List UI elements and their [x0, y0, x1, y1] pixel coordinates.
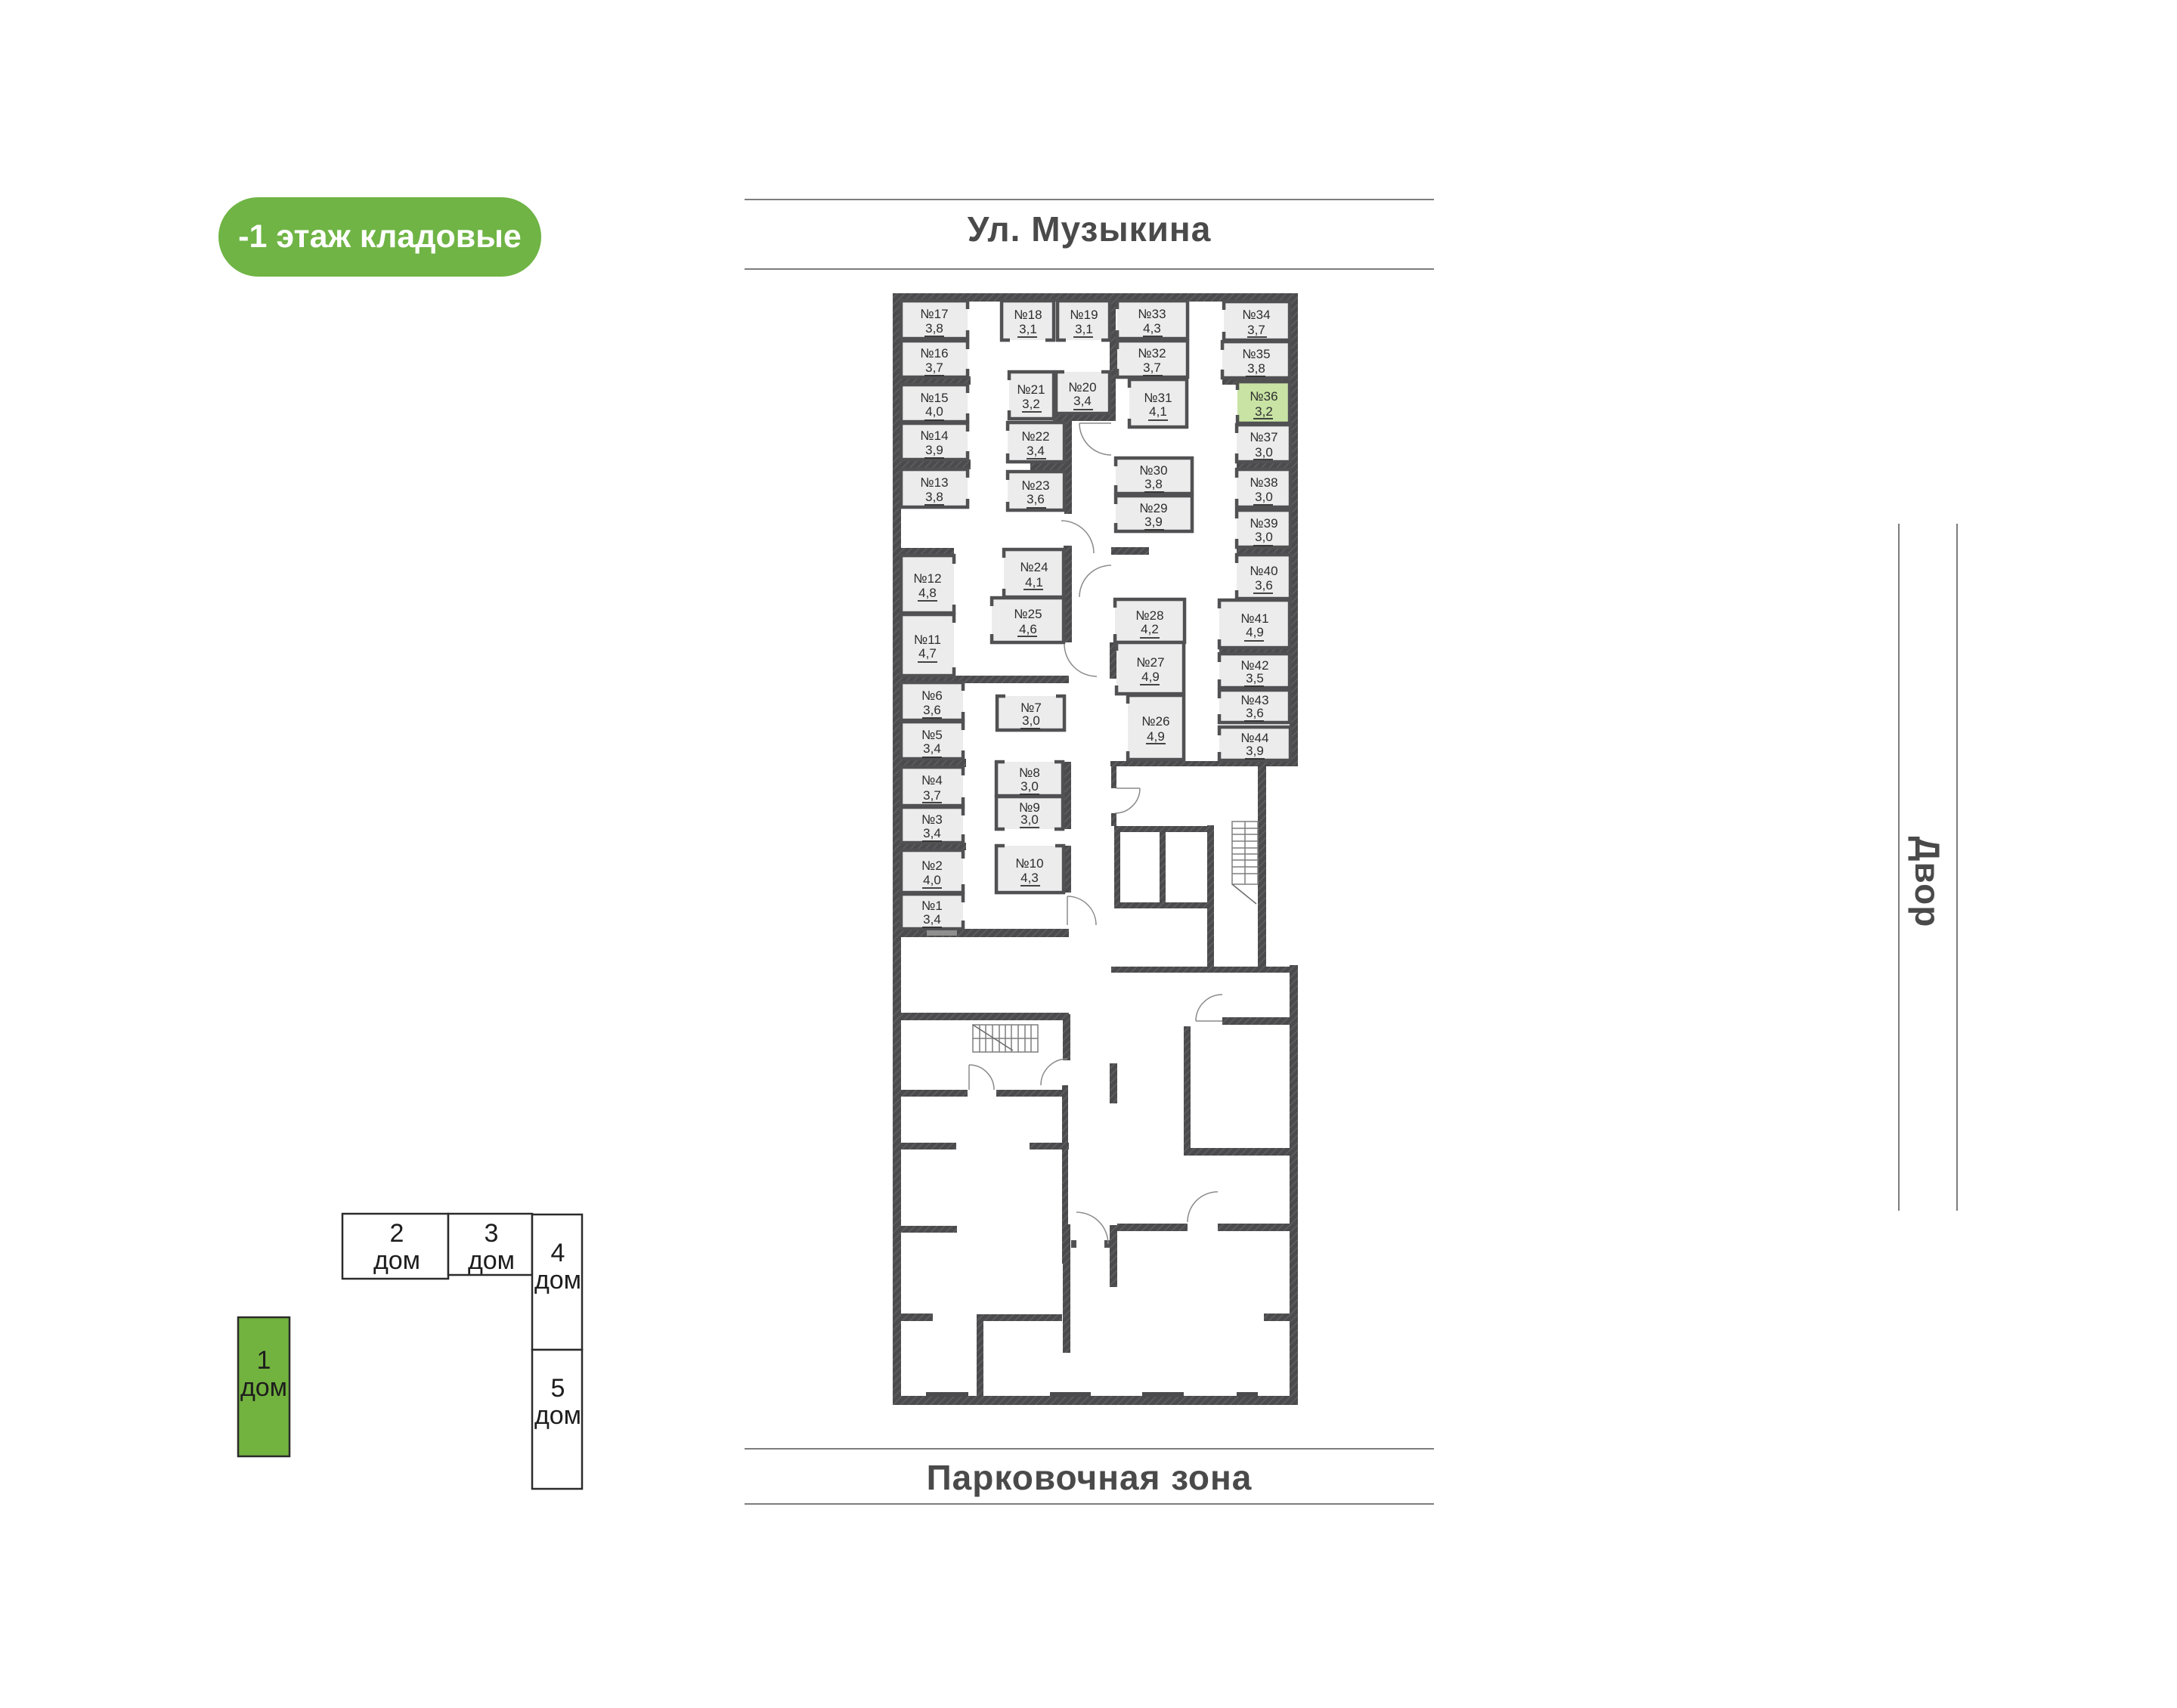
svg-text:4,9: 4,9 [1246, 625, 1264, 639]
svg-text:3,9: 3,9 [1144, 515, 1163, 529]
svg-text:3,7: 3,7 [925, 360, 943, 375]
svg-text:№40: №40 [1250, 564, 1277, 578]
svg-text:№20: №20 [1068, 380, 1096, 395]
svg-text:№1: №1 [921, 899, 943, 913]
svg-text:3,8: 3,8 [925, 321, 943, 336]
svg-text:4,3: 4,3 [1020, 871, 1039, 885]
svg-text:№14: №14 [920, 429, 948, 443]
svg-text:№19: №19 [1070, 308, 1098, 322]
svg-text:3,6: 3,6 [1027, 492, 1045, 506]
svg-text:4,9: 4,9 [1147, 729, 1165, 744]
svg-text:4,0: 4,0 [923, 873, 941, 887]
svg-text:№32: №32 [1138, 346, 1166, 360]
svg-text:№10: №10 [1015, 856, 1043, 871]
svg-text:№11: №11 [914, 633, 941, 647]
svg-text:№3: №3 [921, 812, 943, 827]
svg-text:3,8: 3,8 [925, 490, 943, 504]
svg-text:3,6: 3,6 [1246, 706, 1264, 720]
svg-text:№25: №25 [1014, 607, 1042, 621]
svg-text:4,1: 4,1 [1025, 575, 1043, 589]
svg-text:3,4: 3,4 [923, 912, 941, 927]
svg-text:3,2: 3,2 [1022, 397, 1040, 411]
svg-text:4,6: 4,6 [1019, 622, 1037, 636]
svg-text:№36: №36 [1250, 389, 1277, 404]
svg-text:3,6: 3,6 [923, 703, 941, 717]
svg-text:№35: №35 [1242, 347, 1270, 361]
svg-text:№31: №31 [1144, 391, 1172, 405]
svg-text:4,9: 4,9 [1141, 670, 1160, 684]
svg-text:3,4: 3,4 [923, 741, 941, 756]
svg-text:№41: №41 [1240, 611, 1268, 626]
svg-text:3,7: 3,7 [1143, 360, 1161, 375]
svg-text:№34: №34 [1242, 308, 1270, 322]
svg-text:№2: №2 [921, 859, 943, 873]
svg-text:4,7: 4,7 [918, 646, 937, 661]
svg-text:4,3: 4,3 [1143, 321, 1161, 336]
svg-text:№38: №38 [1250, 475, 1277, 490]
svg-text:№30: №30 [1139, 463, 1167, 478]
svg-text:№12: №12 [913, 571, 941, 586]
svg-text:3,8: 3,8 [1247, 361, 1265, 376]
svg-text:3,0: 3,0 [1255, 490, 1273, 504]
svg-text:4,0: 4,0 [925, 404, 943, 419]
svg-text:№28: №28 [1135, 608, 1163, 623]
svg-text:3,1: 3,1 [1075, 322, 1093, 336]
svg-text:№39: №39 [1250, 516, 1277, 531]
svg-text:№18: №18 [1014, 308, 1042, 322]
svg-text:№29: №29 [1139, 501, 1167, 515]
svg-text:№17: №17 [920, 307, 948, 321]
svg-text:№8: №8 [1019, 766, 1040, 780]
svg-text:3,7: 3,7 [923, 788, 941, 803]
svg-text:№33: №33 [1138, 307, 1166, 321]
svg-text:№6: №6 [921, 688, 943, 703]
svg-text:3,5: 3,5 [1246, 671, 1264, 685]
svg-text:3,7: 3,7 [1247, 323, 1265, 337]
svg-text:3,0: 3,0 [1255, 530, 1273, 544]
svg-text:№23: №23 [1021, 478, 1049, 493]
svg-text:3,9: 3,9 [925, 443, 943, 457]
svg-text:№15: №15 [920, 391, 948, 405]
svg-text:4,2: 4,2 [1141, 622, 1159, 636]
svg-text:3,4: 3,4 [1073, 394, 1092, 408]
svg-text:№26: №26 [1141, 714, 1169, 729]
svg-text:3,2: 3,2 [1255, 404, 1273, 419]
svg-text:№21: №21 [1017, 382, 1045, 397]
svg-text:3,8: 3,8 [1144, 477, 1163, 491]
svg-text:3,0: 3,0 [1255, 445, 1273, 459]
svg-text:3,1: 3,1 [1019, 322, 1037, 336]
svg-text:№13: №13 [920, 475, 948, 490]
svg-text:3,9: 3,9 [1246, 744, 1264, 758]
svg-text:3,6: 3,6 [1255, 578, 1273, 593]
svg-text:3,4: 3,4 [1027, 444, 1045, 458]
svg-text:№5: №5 [921, 728, 943, 742]
svg-text:№37: №37 [1250, 430, 1277, 444]
svg-text:№27: №27 [1136, 655, 1164, 670]
svg-text:3,0: 3,0 [1020, 812, 1039, 827]
svg-text:3,0: 3,0 [1022, 713, 1040, 728]
svg-text:3,4: 3,4 [923, 826, 941, 840]
svg-text:№22: №22 [1021, 429, 1049, 444]
svg-text:4,1: 4,1 [1149, 404, 1167, 419]
svg-text:№16: №16 [920, 346, 948, 360]
svg-text:№4: №4 [921, 773, 943, 787]
svg-text:3,0: 3,0 [1020, 779, 1039, 794]
svg-text:4,8: 4,8 [918, 586, 937, 600]
svg-text:№24: №24 [1020, 560, 1048, 574]
